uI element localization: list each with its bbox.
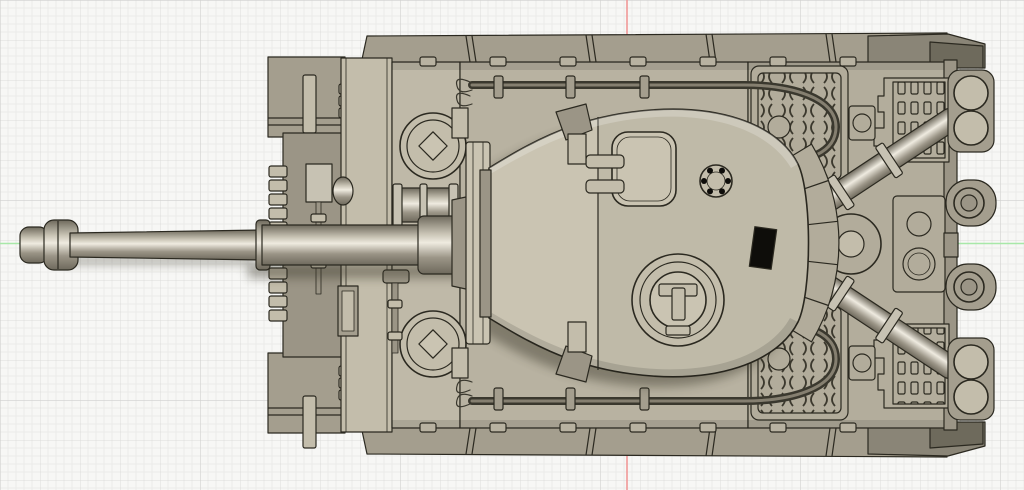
muffler-top[interactable] [948,70,994,152]
cad-canvas[interactable] [0,0,1024,490]
shovel-tool[interactable] [303,75,316,133]
engine-access-plate[interactable] [893,196,945,292]
vision-port[interactable] [338,286,358,336]
muffler-bottom[interactable] [948,338,994,420]
spare-track-links-top[interactable] [269,166,287,233]
mantlet-face [480,170,491,317]
shackle-mount-top[interactable] [946,180,996,226]
pistol-port[interactable] [749,227,776,270]
filler-cap-bottom[interactable] [849,346,875,380]
rear-center-bracket [944,233,958,257]
periscope-guard-top [452,108,468,138]
cad-viewport[interactable] [0,0,1024,490]
commander-cupola[interactable] [632,254,724,346]
shackle-mount-bottom[interactable] [946,264,996,310]
turret-port-ring[interactable] [700,165,732,197]
filler-cap-top[interactable] [849,106,875,140]
shovel-tool[interactable] [303,396,316,448]
periscope-guard-bottom [452,348,468,378]
